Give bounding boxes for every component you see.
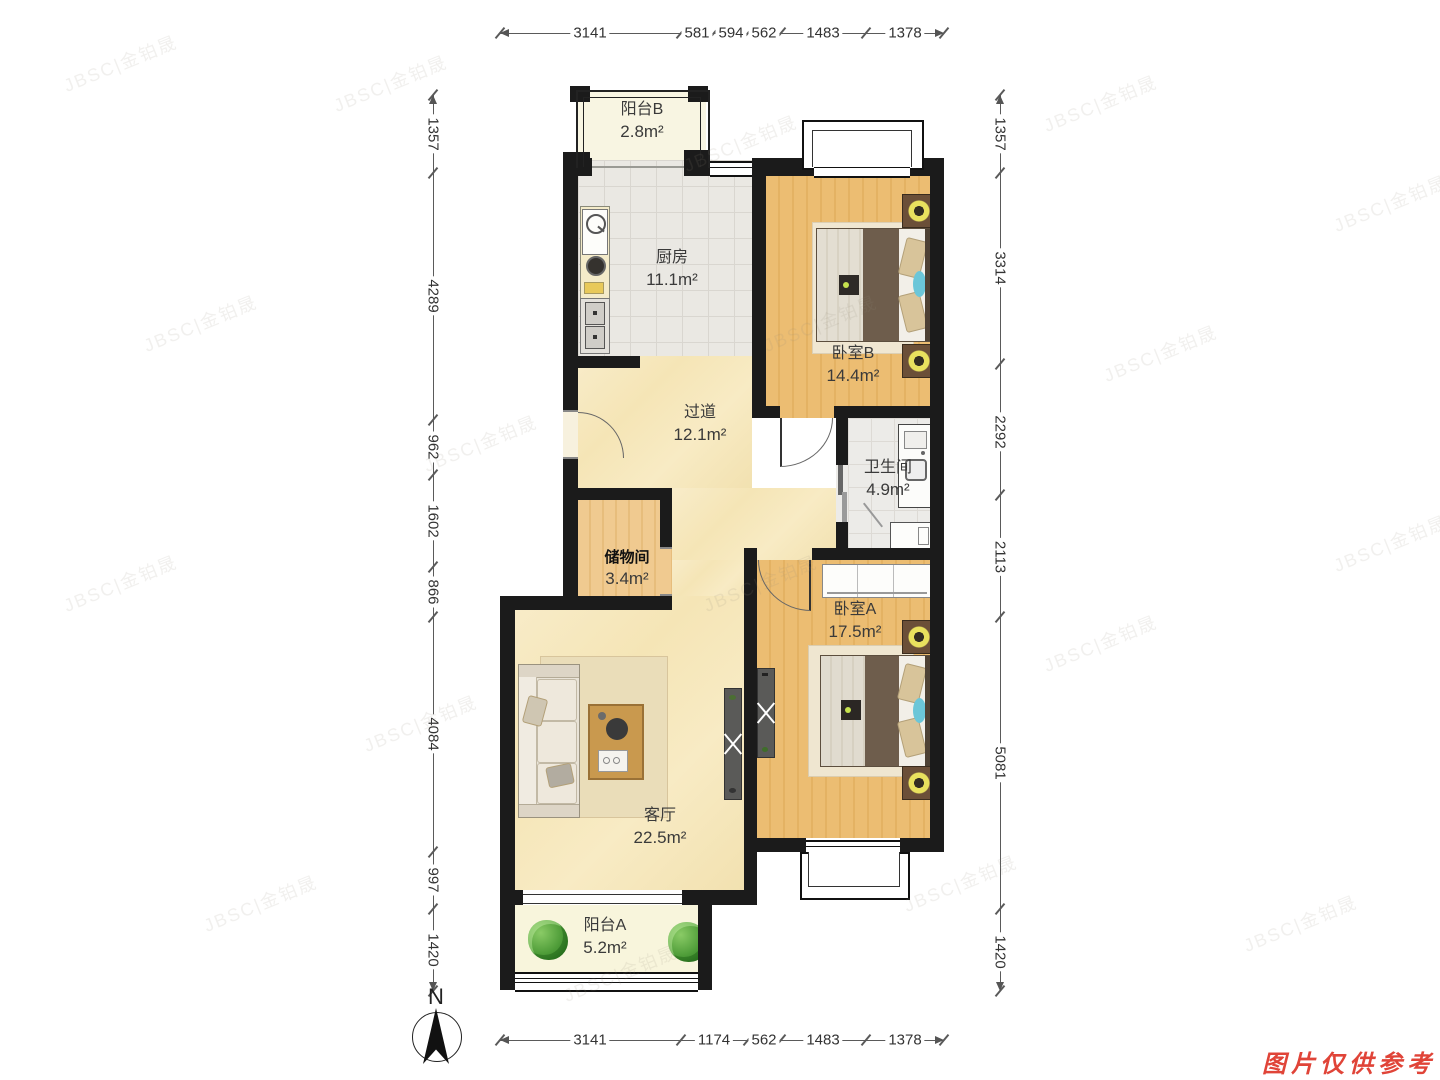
door-jamb bbox=[563, 410, 578, 412]
watermark: JBSC|金铂晟 bbox=[1240, 888, 1362, 957]
watermark: JBSC|金铂晟 bbox=[900, 848, 1022, 917]
wall bbox=[834, 406, 944, 418]
wall bbox=[836, 522, 848, 548]
compass-north-label: N bbox=[428, 984, 444, 1010]
wall bbox=[900, 838, 944, 852]
door-jamb bbox=[563, 457, 578, 459]
dim-label: 3314 bbox=[992, 248, 1009, 287]
wall bbox=[930, 158, 944, 852]
watermark: JBSC|金铂晟 bbox=[60, 548, 182, 617]
dim-arrow-right bbox=[935, 1036, 944, 1044]
dim-label: 594 bbox=[715, 25, 746, 42]
kettle-icon bbox=[606, 718, 628, 740]
room-label-bathroom: 卫生间4.9m² bbox=[843, 458, 933, 501]
dim-label: 4084 bbox=[425, 714, 442, 753]
dim-arrow-down bbox=[996, 982, 1004, 991]
sofa-cushion bbox=[537, 721, 577, 763]
dim-label: 997 bbox=[425, 864, 442, 895]
lamp-icon bbox=[908, 350, 930, 372]
room-label-bedroom-b: 卧室B14.4m² bbox=[803, 344, 903, 387]
wall bbox=[500, 596, 672, 610]
dim-label: 3141 bbox=[570, 25, 609, 42]
bay-window-bedroom-b-frame bbox=[812, 130, 912, 167]
sofa bbox=[518, 664, 580, 818]
threshold-bedroom-b bbox=[780, 406, 834, 418]
dim-label: 1602 bbox=[425, 501, 442, 540]
window-balcony-a bbox=[515, 972, 698, 992]
room-label-storage: 储物间3.4m² bbox=[572, 548, 682, 590]
room-label-hallway: 过道12.1m² bbox=[650, 403, 750, 446]
watermark: JBSC|金铂晟 bbox=[1040, 608, 1162, 677]
sofa-armrest bbox=[519, 804, 579, 817]
disclaimer-text: 图片仅供参考 bbox=[1262, 1044, 1436, 1079]
wall bbox=[660, 488, 672, 548]
stove-door bbox=[585, 302, 605, 325]
watermark: JBSC|金铂晟 bbox=[200, 868, 322, 937]
watermark: JBSC|金铂晟 bbox=[1330, 508, 1440, 577]
bed-blanket bbox=[865, 656, 899, 766]
bed-blanket bbox=[863, 229, 899, 341]
wardrobe-front-line bbox=[827, 592, 927, 594]
coffee-table bbox=[588, 704, 644, 780]
lamp-icon bbox=[908, 200, 930, 222]
wall bbox=[752, 158, 766, 418]
kitchen-sink bbox=[582, 209, 608, 255]
stove-door bbox=[585, 326, 605, 349]
wall bbox=[500, 905, 515, 990]
watermark: JBSC|金铂晟 bbox=[1100, 318, 1222, 387]
storage-door-opening bbox=[660, 594, 672, 596]
bay-window-bedroom-a-frame bbox=[808, 852, 900, 887]
dim-label: 562 bbox=[748, 1032, 779, 1049]
dim-label: 2292 bbox=[992, 412, 1009, 451]
dim-arrow-up bbox=[996, 95, 1004, 104]
dim-label: 866 bbox=[425, 576, 442, 607]
room-label-kitchen: 厨房11.1m² bbox=[622, 248, 722, 291]
lamp-icon bbox=[908, 626, 930, 648]
wall bbox=[698, 905, 712, 990]
watermark: JBSC|金铂晟 bbox=[60, 28, 182, 97]
dim-label: 1357 bbox=[992, 114, 1009, 153]
wall bbox=[812, 548, 944, 560]
dim-label: 1483 bbox=[803, 25, 842, 42]
kitchen-small-item bbox=[584, 282, 604, 294]
room-label-balcony-b: 阳台B2.8m² bbox=[592, 100, 692, 143]
washer-detail bbox=[918, 527, 929, 545]
vanity-dot bbox=[921, 451, 925, 455]
watermark: JBSC|金铂晟 bbox=[360, 688, 482, 757]
room-label-living: 客厅22.5m² bbox=[610, 806, 710, 849]
dim-label: 1483 bbox=[803, 1032, 842, 1049]
kitchen-burner-icon bbox=[586, 256, 606, 276]
wall bbox=[744, 838, 806, 852]
window-north bbox=[710, 161, 752, 177]
watermark: JBSC|金铂晟 bbox=[1330, 168, 1440, 237]
bathroom-washer bbox=[890, 522, 932, 549]
wall bbox=[752, 406, 780, 418]
threshold-entry bbox=[563, 412, 578, 458]
kitchen-stove bbox=[580, 298, 610, 354]
wall bbox=[500, 610, 515, 905]
dim-label: 5081 bbox=[992, 743, 1009, 782]
cup-icon bbox=[598, 712, 606, 720]
wall bbox=[500, 890, 523, 905]
tv-unit-bedroom-a bbox=[757, 668, 775, 758]
room-label-balcony-a: 阳台A5.2m² bbox=[555, 916, 655, 959]
wall bbox=[563, 158, 578, 412]
dim-label: 4289 bbox=[425, 276, 442, 315]
dim-arrow-right bbox=[935, 29, 944, 37]
dim-label: 1420 bbox=[425, 930, 442, 969]
dim-arrow-left bbox=[500, 29, 509, 37]
lamp-icon bbox=[908, 772, 930, 794]
dim-label: 1420 bbox=[992, 932, 1009, 971]
wall bbox=[563, 356, 640, 368]
dim-label: 1174 bbox=[695, 1032, 733, 1049]
door-arc-bedroom-b bbox=[780, 418, 833, 467]
sliding-track-balcony-a bbox=[523, 894, 682, 904]
dim-label: 3141 bbox=[570, 1032, 609, 1049]
floorplan-canvas: 阳台B2.8m² 厨房11.1m² 卧室B14.4m² 过道12.1m² 卫生间… bbox=[0, 0, 1440, 1080]
watermark: JBSC|金铂晟 bbox=[1040, 68, 1162, 137]
watermark: JBSC|金铂晟 bbox=[140, 288, 262, 357]
bed-bedroom-b bbox=[816, 228, 932, 342]
dim-label: 1378 bbox=[885, 25, 924, 42]
bed-tray bbox=[841, 700, 861, 720]
dim-line-left bbox=[433, 95, 434, 991]
vanity-detail bbox=[904, 431, 927, 449]
dim-arrow-up bbox=[429, 95, 437, 104]
dim-label: 1378 bbox=[885, 1032, 924, 1049]
bed-tray bbox=[839, 275, 859, 295]
compass: N bbox=[404, 984, 484, 1080]
dim-label: 581 bbox=[681, 25, 712, 42]
room-label-bedroom-a: 卧室A17.5m² bbox=[805, 600, 905, 643]
wardrobe-bedroom-a bbox=[822, 564, 932, 598]
dim-label: 2113 bbox=[992, 538, 1009, 576]
dim-label: 1357 bbox=[425, 114, 442, 153]
tray-icon bbox=[598, 750, 628, 772]
dim-label: 962 bbox=[425, 431, 442, 462]
bed-bedroom-a bbox=[820, 655, 932, 767]
dim-label: 562 bbox=[748, 25, 779, 42]
dim-arrow-left bbox=[500, 1036, 509, 1044]
wall bbox=[563, 488, 672, 500]
tv-unit-living bbox=[724, 688, 742, 800]
